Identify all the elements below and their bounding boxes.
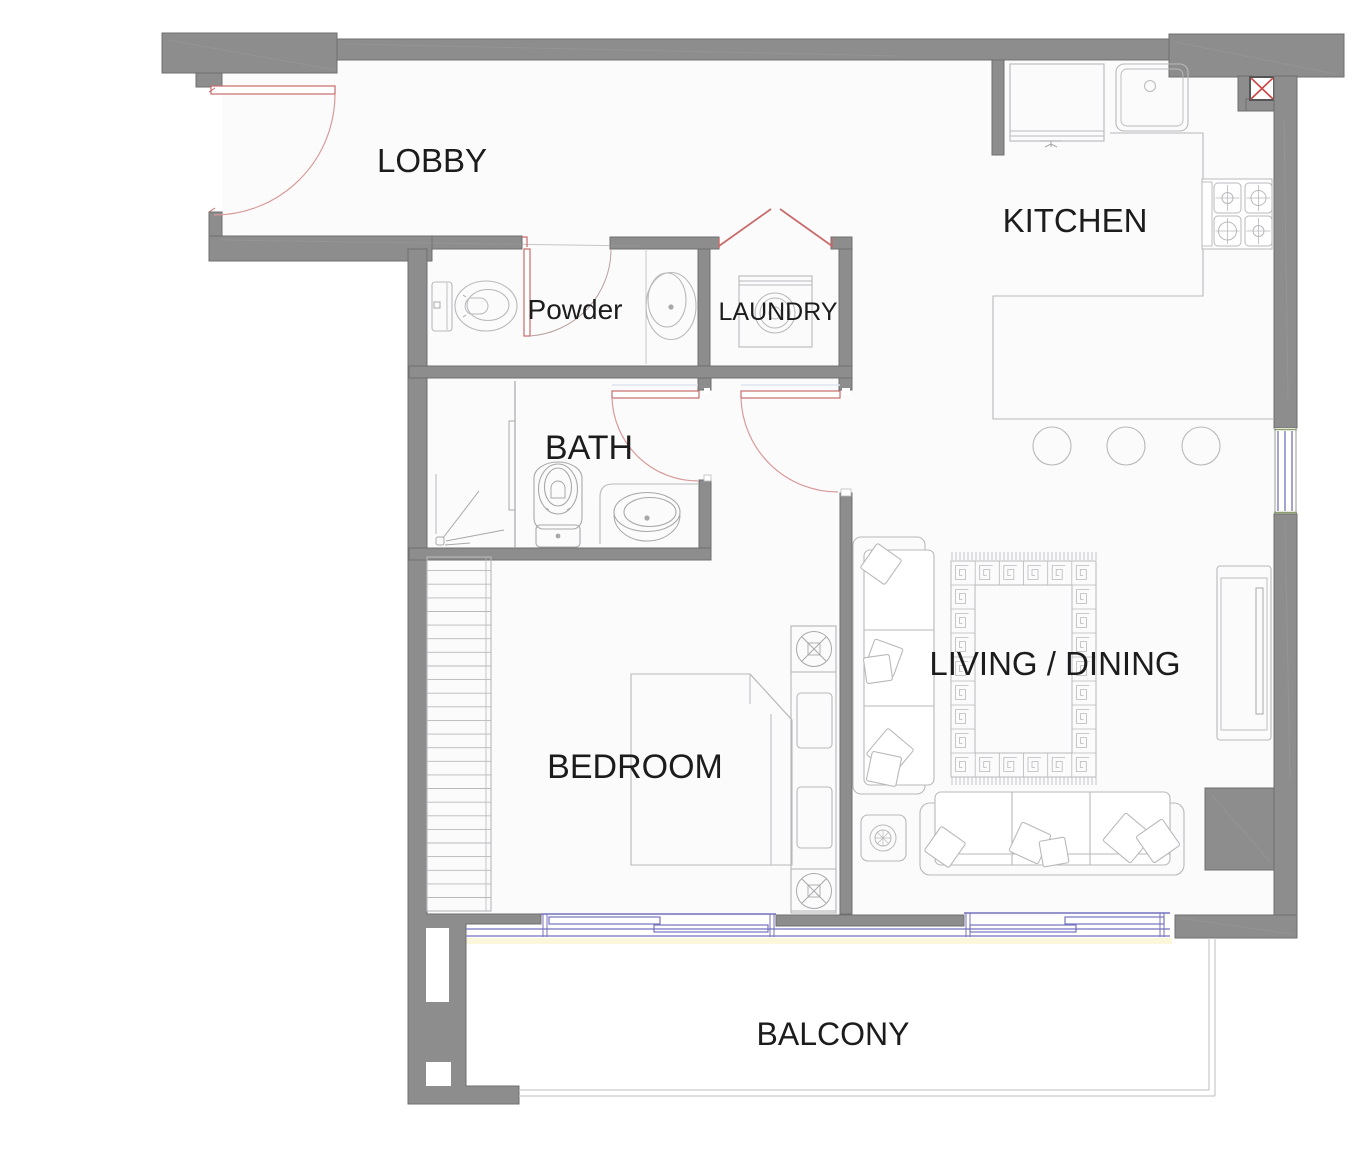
svg-text:LIVING / DINING: LIVING / DINING xyxy=(929,645,1180,682)
svg-text:BEDROOM: BEDROOM xyxy=(547,748,723,786)
svg-text:Powder: Powder xyxy=(528,294,623,325)
svg-text:BATH: BATH xyxy=(545,429,633,467)
svg-text:LAUNDRY: LAUNDRY xyxy=(718,298,837,326)
svg-text:BALCONY: BALCONY xyxy=(757,1016,910,1052)
svg-text:KITCHEN: KITCHEN xyxy=(1003,202,1148,239)
svg-text:LOBBY: LOBBY xyxy=(377,142,487,179)
